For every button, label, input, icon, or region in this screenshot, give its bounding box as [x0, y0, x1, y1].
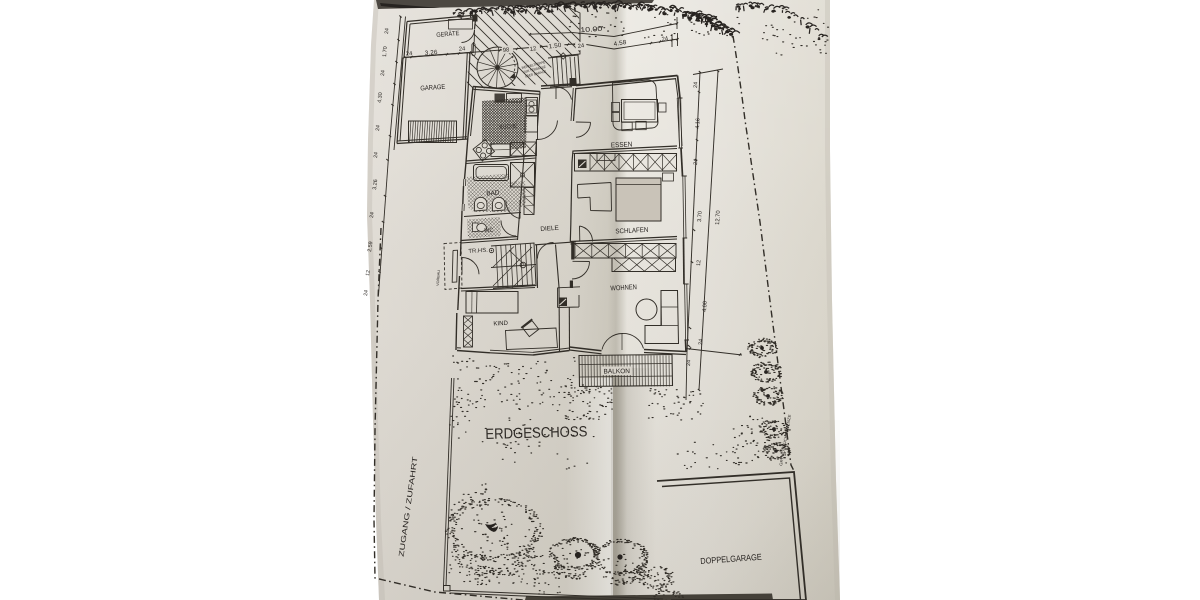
svg-text:TR.HS.: TR.HS.	[468, 247, 488, 255]
svg-text:24: 24	[369, 212, 376, 219]
svg-text:24: 24	[363, 290, 370, 297]
svg-text:24: 24	[698, 339, 704, 345]
svg-text:1.70: 1.70	[382, 46, 389, 57]
svg-text:WOHNEN: WOHNEN	[610, 284, 637, 292]
svg-text:24: 24	[384, 28, 390, 34]
svg-text:4.00: 4.00	[702, 301, 709, 312]
svg-text:12: 12	[365, 270, 372, 277]
svg-text:24: 24	[373, 152, 380, 158]
svg-text:BALKON: BALKON	[603, 368, 630, 375]
svg-text:3.70: 3.70	[697, 211, 704, 222]
svg-text:24: 24	[693, 159, 699, 165]
svg-text:ERDGESCHOSS: ERDGESCHOSS	[485, 424, 587, 443]
svg-text:ESSEN: ESSEN	[611, 141, 633, 149]
svg-text:12.70: 12.70	[714, 210, 722, 225]
svg-text:98: 98	[502, 46, 509, 54]
svg-text:KIND: KIND	[493, 320, 508, 328]
svg-text:12: 12	[529, 45, 536, 53]
svg-text:4.16: 4.16	[695, 118, 702, 129]
svg-text:3.26: 3.26	[372, 179, 379, 190]
svg-text:DIELE: DIELE	[540, 225, 559, 233]
svg-text:24: 24	[380, 70, 386, 76]
svg-text:BAD: BAD	[486, 190, 500, 198]
svg-text:24: 24	[686, 360, 692, 366]
svg-text:WC: WC	[484, 227, 494, 235]
svg-text:24: 24	[693, 82, 699, 88]
svg-text:24: 24	[375, 125, 382, 131]
svg-text:12: 12	[696, 260, 702, 266]
svg-text:4.30: 4.30	[377, 92, 384, 103]
